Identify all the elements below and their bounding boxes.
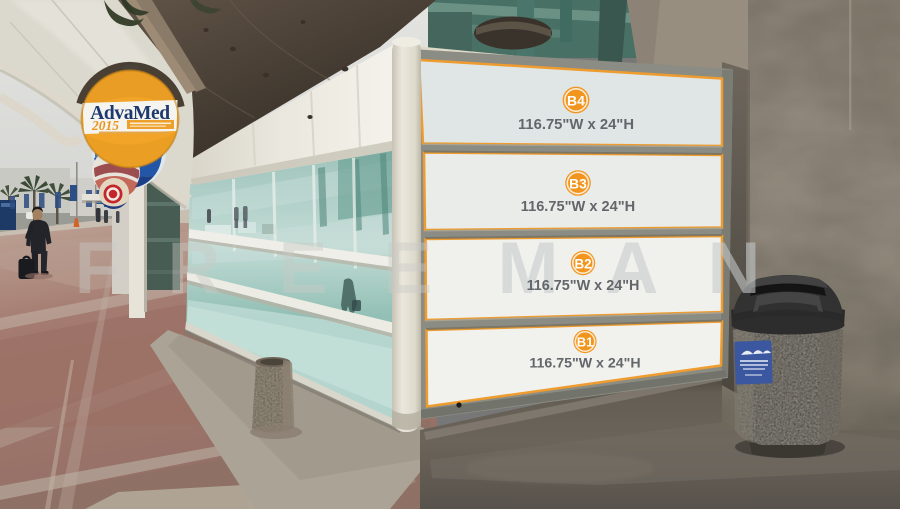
svg-text:A: A: [606, 228, 659, 309]
svg-text:116.75"W x 24"H: 116.75"W x 24"H: [518, 117, 634, 133]
svg-text:B4: B4: [567, 93, 585, 109]
svg-text:F: F: [75, 228, 120, 309]
svg-text:B1: B1: [577, 335, 594, 350]
svg-text:E: E: [279, 228, 328, 309]
svg-text:116.75"W x 24"H: 116.75"W x 24"H: [529, 356, 640, 372]
svg-text:2015: 2015: [91, 118, 119, 133]
svg-text:B2: B2: [574, 256, 591, 271]
svg-text:R: R: [168, 228, 221, 309]
svg-text:E: E: [384, 228, 433, 309]
svg-text:N: N: [708, 228, 761, 309]
svg-text:B3: B3: [569, 177, 587, 192]
svg-text:116.75"W x 24"H: 116.75"W x 24"H: [527, 278, 640, 294]
svg-text:116.75"W x 24"H: 116.75"W x 24"H: [521, 199, 635, 215]
svg-text:M: M: [498, 228, 559, 309]
